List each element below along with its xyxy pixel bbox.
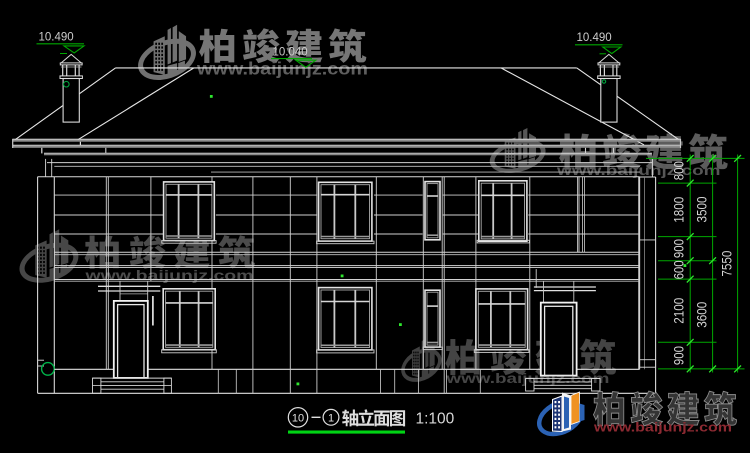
svg-text:900: 900: [672, 346, 687, 365]
svg-text:1:100: 1:100: [416, 411, 455, 428]
svg-text:www.baijunjz.com: www.baijunjz.com: [593, 419, 732, 434]
svg-text:600: 600: [672, 260, 687, 279]
svg-text:10: 10: [292, 412, 304, 424]
svg-text:1: 1: [328, 412, 334, 424]
svg-text:www.baijunjz.com: www.baijunjz.com: [556, 162, 721, 178]
svg-text:800: 800: [672, 161, 687, 180]
svg-text:7550: 7550: [720, 251, 735, 277]
svg-text:2100: 2100: [672, 298, 687, 324]
svg-text:10.490: 10.490: [39, 31, 74, 43]
svg-text:10.490: 10.490: [577, 32, 612, 44]
svg-text:1800: 1800: [672, 197, 687, 223]
svg-text:3500: 3500: [695, 197, 710, 223]
svg-text:10.040: 10.040: [273, 47, 308, 59]
svg-text:3600: 3600: [695, 302, 710, 328]
svg-text:900: 900: [672, 239, 687, 258]
